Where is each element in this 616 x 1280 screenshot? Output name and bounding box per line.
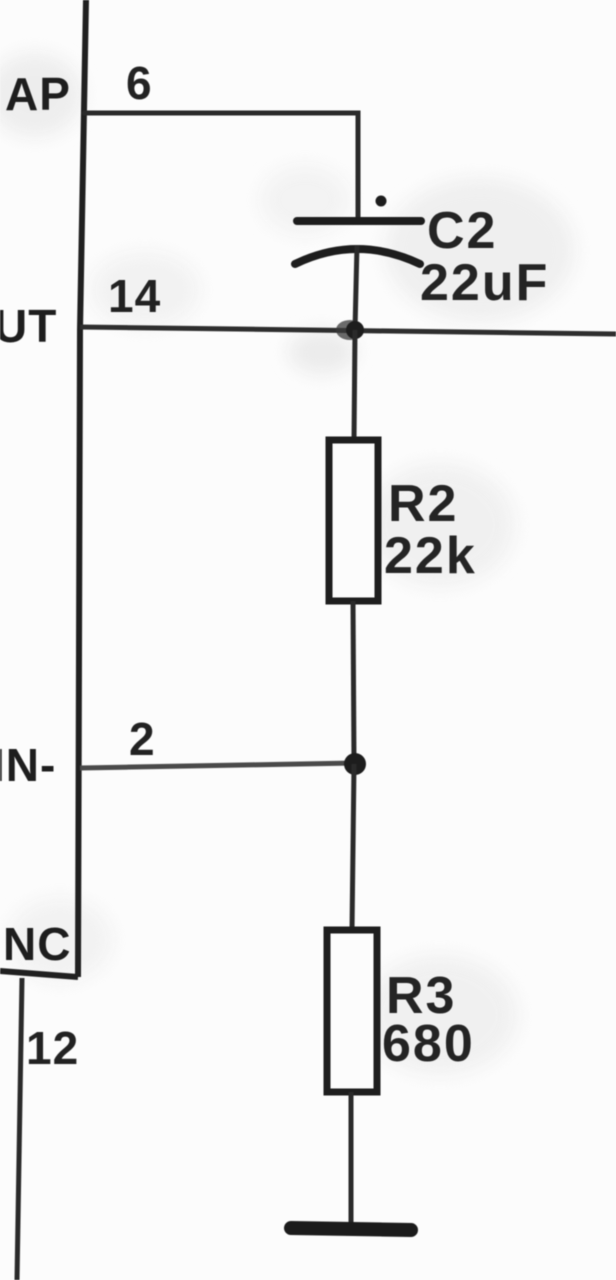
pin-label-cap: AP: [5, 68, 71, 120]
component-value-r2: 22k: [384, 527, 477, 585]
component-value-r3: 680: [382, 1015, 475, 1073]
schematic-page: AP UT IN- NC 6 14 2 12 C2 22uF R2 22k R3…: [0, 0, 616, 1280]
capacitor-polarity-dot: [376, 196, 387, 207]
pin2-wire: [80, 763, 355, 768]
component-value-c2: 22uF: [420, 254, 549, 312]
pin-label-out: UT: [0, 300, 57, 352]
pin12-wire: [17, 978, 22, 1280]
pin-number-12: 12: [26, 1022, 79, 1074]
pin-label-in: IN-: [0, 739, 56, 791]
ic-body: [0, 0, 86, 977]
ground-symbol: [291, 1228, 411, 1230]
circuit-schematic: AP UT IN- NC 6 14 2 12 C2 22uF R2 22k R3…: [0, 0, 616, 1280]
pin-number-2: 2: [129, 713, 156, 765]
wire-out-to-r2: [354, 330, 355, 441]
component-ref-r2: R2: [388, 475, 458, 533]
pin-number-14: 14: [108, 270, 161, 322]
ic-right-edge: [78, 0, 86, 977]
pin-label-nc: NC: [3, 918, 71, 970]
resistor-r3-body: [327, 930, 377, 1092]
capacitor-lower-lead: [355, 245, 357, 330]
resistor-r2-body: [329, 440, 378, 601]
component-ref-c2: C2: [427, 202, 497, 260]
wire-r2-to-junction: [353, 601, 354, 764]
wire-junction-to-r3: [352, 764, 354, 931]
pin-number-6: 6: [126, 57, 153, 109]
